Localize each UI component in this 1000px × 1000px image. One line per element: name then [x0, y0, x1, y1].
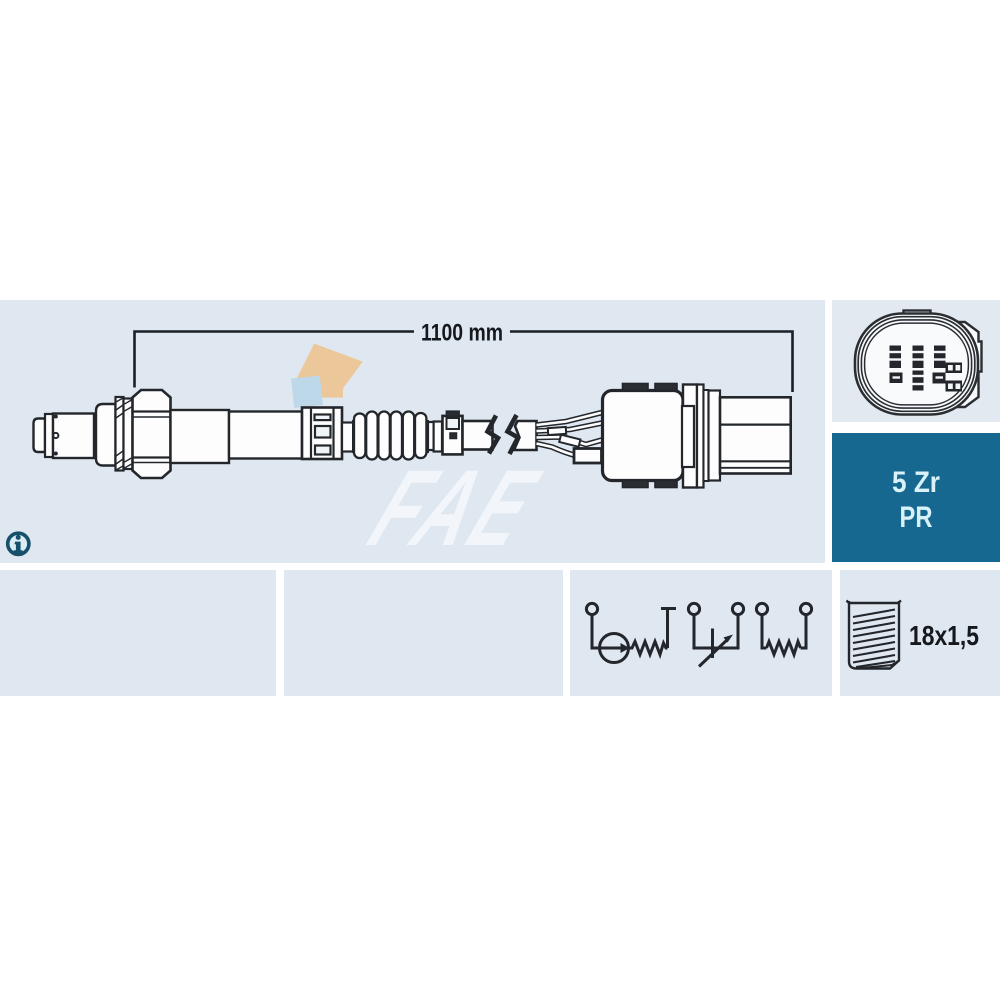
svg-text:PR: PR [900, 501, 933, 534]
svg-text:5 Zr: 5 Zr [892, 466, 940, 499]
svg-text:1100 mm: 1100 mm [421, 320, 503, 347]
svg-text:18x1,5: 18x1,5 [909, 620, 979, 651]
